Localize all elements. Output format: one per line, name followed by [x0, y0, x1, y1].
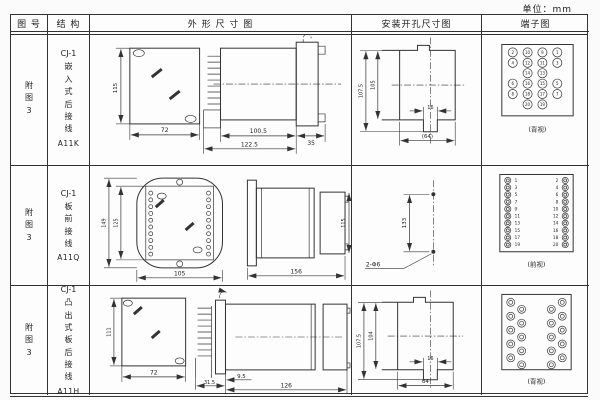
terminal-number: 18	[525, 92, 531, 97]
svg-text:4: 4	[556, 185, 559, 190]
series-label: CJ-1	[61, 285, 77, 294]
row3-install-drawing: 107.5 104 16 64	[352, 286, 481, 395]
dim-label: 125	[113, 218, 119, 227]
view-label: (背视)	[528, 377, 546, 386]
dim-label: 122.5	[241, 141, 258, 148]
row2-fig-no-cell: 附图3	[11, 165, 47, 285]
terminal-number: 15	[540, 81, 546, 86]
row3-fig-no-cell: 附图3	[11, 285, 47, 395]
svg-text:8: 8	[556, 199, 559, 204]
series-label: CJ-1	[61, 189, 77, 198]
terminal-number: 19	[540, 102, 546, 107]
terminal-number: 10	[525, 50, 531, 55]
dim-label: 111	[106, 327, 112, 336]
row2-structure-cell: CJ-1 板前接线 A11Q	[47, 165, 89, 285]
type-label: 嵌入式后接线	[65, 61, 73, 135]
row1-fig-no-cell: 附图3	[11, 31, 47, 165]
dim-label: 149	[101, 218, 107, 227]
terminal-number: 8	[511, 92, 514, 97]
svg-text:1: 1	[515, 178, 518, 183]
terminal-number: 13	[540, 71, 546, 76]
dim-label: 16	[427, 356, 433, 362]
terminal-number: 17	[540, 92, 546, 97]
dim-label: 64	[422, 379, 429, 385]
col-header-fig-no: 图 号	[11, 15, 47, 31]
row2-install-cell: 133 2-Φ6	[351, 165, 481, 285]
svg-text:16: 16	[553, 228, 559, 233]
row1-install-cell: 107.5 105 16 (64)	[351, 31, 481, 165]
terminal-number: 16	[525, 81, 531, 86]
header-double-rule	[10, 34, 588, 35]
dim-label: 156	[291, 268, 303, 275]
model-label: A11K	[58, 139, 80, 148]
svg-text:12: 12	[553, 214, 559, 219]
terminal-number: 5	[556, 81, 559, 86]
svg-text:10: 10	[553, 206, 559, 211]
dim-label: 105	[370, 80, 376, 89]
terminal-number: 3	[556, 60, 559, 65]
model-label: A11H	[57, 387, 79, 395]
fig-no-label: 附图3	[25, 322, 33, 359]
col-header-structure: 结 构	[47, 15, 89, 31]
spec-table: 图 号 结 构 外 形 尺 寸 图 安装开孔尺寸图 端子图 附图3 CJ-1 嵌…	[10, 14, 588, 394]
dim-label: 72	[161, 127, 169, 134]
svg-text:7: 7	[515, 199, 518, 204]
dim-label: 104	[368, 331, 374, 340]
col-header-outline: 外 形 尺 寸 图	[89, 15, 351, 31]
terminal-number: 2	[511, 50, 514, 55]
terminal-number: 7	[556, 92, 559, 97]
row2-outline-drawing: 149 125 105 156 115	[90, 166, 351, 285]
row1-structure-cell: CJ-1 嵌入式后接线 A11K	[47, 31, 89, 165]
row3-structure-cell: CJ-1 凸出式板后接线 A11H	[47, 285, 89, 395]
svg-text:20: 20	[553, 242, 559, 247]
terminal-number: 9	[541, 50, 544, 55]
terminal-number: 12	[525, 60, 531, 65]
series-label: CJ-1	[61, 49, 77, 58]
terminal-circles: 2 10 9 1 4 12 11 3 14 13 6 16 15 5 8 18 …	[508, 48, 562, 109]
dim-label: 115	[341, 218, 347, 227]
dim-label: 105	[174, 270, 186, 277]
row2-terminal-drawing: 12 34 56 78 910 1112 1314 1516 1718 1920…	[482, 166, 589, 285]
dim-label: 100.5	[250, 128, 267, 135]
row3-outline-drawing: 111 72 9.5 31.5 126	[90, 286, 351, 395]
view-label: (前视)	[528, 260, 546, 269]
svg-text:2: 2	[556, 178, 559, 183]
dim-label: 72	[150, 369, 158, 376]
dim-label: 16	[427, 105, 433, 111]
row3-terminal-drawing: (背视)	[482, 286, 589, 395]
row3-install-cell: 107.5 104 16 64	[351, 285, 481, 395]
dim-label: 107.5	[358, 84, 364, 98]
terminal-number: 4	[511, 60, 514, 65]
row2-install-drawing: 133 2-Φ6	[352, 166, 481, 285]
row1-terminal-cell: 2 10 9 1 4 12 11 3 14 13 6 16 15 5 8 18 …	[481, 31, 589, 165]
dim-label: 107.5	[356, 334, 362, 348]
svg-text:13: 13	[515, 221, 521, 226]
terminal-number: 14	[525, 71, 531, 76]
terminal-number: 20	[525, 102, 531, 107]
dim-label: 126	[281, 382, 293, 389]
row3-outline-cell: 111 72 9.5 31.5 126	[89, 285, 351, 395]
dim-label: (64)	[422, 134, 433, 140]
terminal-numbers: 12 34 56 78 910 1112 1314 1516 1718 1920	[515, 178, 559, 247]
fig-no-label: 附图3	[25, 80, 33, 117]
terminal-number: 11	[540, 60, 546, 65]
svg-text:5: 5	[515, 192, 518, 197]
svg-text:19: 19	[515, 242, 521, 247]
row1-install-drawing: 107.5 105 16 (64)	[352, 32, 481, 165]
row2-terminal-cell: 12 34 56 78 910 1112 1314 1516 1718 1920…	[481, 165, 589, 285]
model-label: A11Q	[57, 253, 80, 262]
svg-text:3: 3	[515, 185, 518, 190]
row3-terminal-cell: (背视)	[481, 285, 589, 395]
row1-outline-cell: 115 72 100.5 35 122.5	[89, 31, 351, 165]
view-label: (背视)	[529, 125, 547, 134]
type-label: 凸出式板后接线	[65, 297, 73, 384]
svg-text:11: 11	[515, 214, 521, 219]
row1-terminal-drawing: 2 10 9 1 4 12 11 3 14 13 6 16 15 5 8 18 …	[482, 32, 589, 165]
col-header-install: 安装开孔尺寸图	[351, 15, 481, 31]
svg-text:14: 14	[553, 221, 559, 226]
svg-text:15: 15	[515, 228, 521, 233]
row2-outline-cell: 149 125 105 156 115	[89, 165, 351, 285]
row1-outline-drawing: 115 72 100.5 35 122.5	[90, 32, 351, 165]
col-header-terminal: 端子图	[481, 15, 589, 31]
terminal-circles	[507, 298, 566, 368]
terminal-number: 6	[511, 81, 514, 86]
dim-label: 133	[402, 217, 408, 228]
dim-label: 9.5	[237, 374, 246, 380]
bottom-double-rule	[10, 396, 588, 397]
type-label: 板前接线	[65, 201, 73, 251]
dim-label: 31.5	[204, 380, 215, 386]
svg-text:17: 17	[515, 235, 521, 240]
hole-label: 2-Φ6	[366, 262, 381, 269]
svg-text:18: 18	[553, 235, 559, 240]
dim-label: 115	[113, 83, 119, 93]
fig-no-label: 附图3	[25, 207, 33, 244]
svg-text:9: 9	[515, 206, 518, 211]
svg-text:6: 6	[556, 192, 559, 197]
terminal-number: 1	[556, 50, 559, 55]
dim-label: 35	[307, 140, 315, 147]
terminal-strips	[149, 191, 211, 256]
